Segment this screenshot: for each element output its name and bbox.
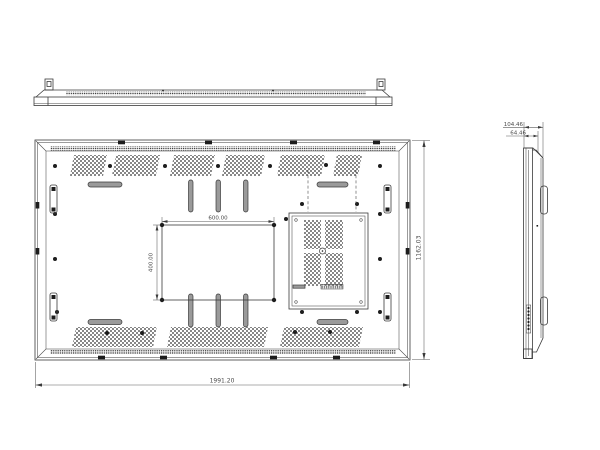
vesa-hole-bottom-right — [272, 298, 276, 302]
technical-drawing: 1991.20 1162.03 600.00 400.00 — [0, 0, 600, 450]
plate-screw — [295, 301, 298, 304]
vent-clusters-top — [70, 155, 362, 176]
dashed-reference-lines — [308, 170, 356, 212]
plate-screw — [360, 219, 363, 222]
side-center-mark — [537, 225, 539, 227]
vesa-mount-pattern — [160, 223, 276, 302]
top-view-mark-right — [272, 90, 274, 92]
side-back-cover — [533, 150, 544, 352]
depth-body-label: 64.46 — [510, 131, 526, 137]
top-view-left-chamfer — [36, 90, 44, 97]
top-view-left-lug — [45, 79, 53, 90]
overall-width-label: 1991.20 — [210, 378, 235, 385]
overall-height-label: 1162.03 — [416, 235, 423, 260]
handle-bracket-left-bottom — [50, 293, 57, 321]
top-view-right-chamfer — [382, 90, 390, 97]
handle-bracket-right-bottom — [384, 293, 391, 321]
top-view-vent-perforation-strip — [66, 92, 366, 96]
top-view-mark-left — [162, 90, 164, 92]
top-view-right-lug — [377, 79, 385, 90]
side-view — [524, 148, 548, 359]
side-handle-bottom — [541, 297, 548, 325]
vent-clusters-bottom — [72, 327, 363, 347]
vesa-height-label: 400.00 — [149, 252, 155, 272]
top-view-base-bar — [34, 97, 392, 106]
side-handle-top — [541, 186, 548, 214]
drawing-canvas: 1991.20 1162.03 600.00 400.00 — [0, 0, 600, 450]
plate-side-bar — [293, 285, 305, 288]
dimension-overall-height: 1162.03 — [412, 141, 430, 360]
vesa-width-label: 600.00 — [208, 216, 228, 222]
rear-view — [35, 140, 410, 360]
side-top-chamfer — [524, 148, 543, 158]
bottom-perforation-strip — [50, 350, 396, 354]
dimension-vesa-height: 400.00 — [149, 225, 161, 300]
top-perforation-strip — [50, 146, 396, 150]
plate-connector-strip — [321, 285, 343, 290]
electronics-cover-plate — [289, 213, 368, 309]
plate-screw — [360, 301, 363, 304]
dimension-vesa-width: 600.00 — [162, 216, 274, 224]
plate-screw — [295, 219, 298, 222]
handle-bracket-left-top — [50, 185, 57, 213]
depth-total-label: 104.46 — [504, 122, 524, 128]
dimension-overall-width: 1991.20 — [36, 362, 410, 388]
side-front-panel — [524, 148, 533, 359]
dimension-depth-body: 64.46 — [506, 131, 538, 153]
side-bottom-foot — [524, 349, 533, 359]
handle-bracket-right-top — [384, 185, 391, 213]
top-view — [34, 79, 392, 106]
